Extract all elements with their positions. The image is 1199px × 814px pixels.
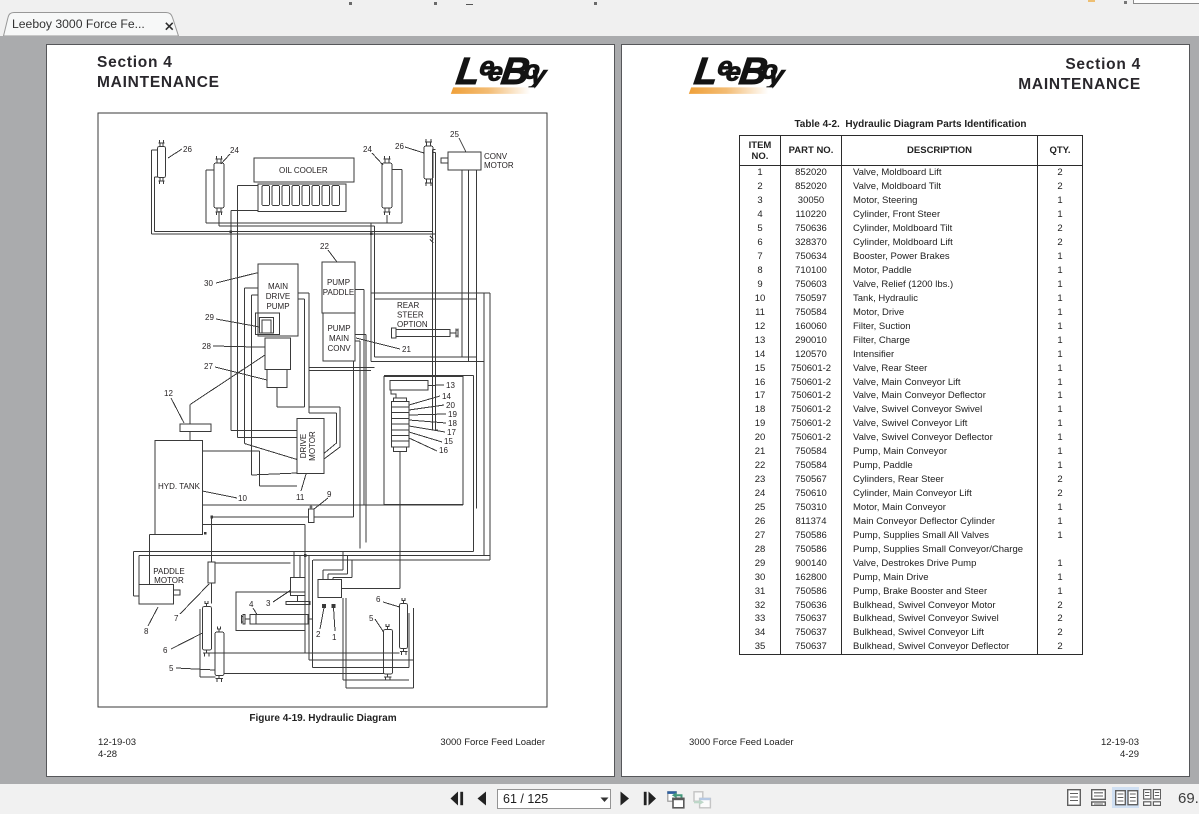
- svg-text:30: 30: [204, 279, 213, 288]
- svg-text:PADDLE: PADDLE: [323, 288, 354, 297]
- svg-text:STEER: STEER: [397, 311, 424, 320]
- svg-text:MOTOR: MOTOR: [308, 431, 317, 461]
- svg-text:MAIN: MAIN: [268, 282, 288, 291]
- svg-text:27: 27: [204, 362, 213, 371]
- svg-text:11: 11: [296, 493, 305, 502]
- svg-text:MOTOR: MOTOR: [154, 576, 184, 585]
- svg-text:20: 20: [446, 401, 455, 410]
- svg-text:1: 1: [332, 633, 337, 642]
- svg-text:MAIN: MAIN: [329, 334, 349, 343]
- svg-text:4: 4: [249, 600, 254, 609]
- svg-text:18: 18: [448, 419, 457, 428]
- svg-text:10: 10: [238, 494, 247, 503]
- svg-text:12: 12: [164, 389, 173, 398]
- svg-text:24: 24: [230, 146, 239, 155]
- svg-text:15: 15: [444, 437, 453, 446]
- svg-text:OIL COOLER: OIL COOLER: [279, 166, 328, 175]
- svg-text:PUMP: PUMP: [327, 278, 350, 287]
- svg-text:6: 6: [376, 595, 381, 604]
- svg-text:17: 17: [447, 428, 456, 437]
- svg-text:19: 19: [448, 410, 457, 419]
- svg-text:8: 8: [144, 627, 149, 636]
- svg-text:13: 13: [446, 381, 455, 390]
- svg-text:26: 26: [183, 145, 192, 154]
- svg-text:22: 22: [320, 242, 329, 251]
- svg-text:DRIVE: DRIVE: [299, 434, 308, 458]
- svg-text:REAR: REAR: [397, 301, 419, 310]
- svg-text:16: 16: [439, 446, 448, 455]
- svg-text:PUMP: PUMP: [327, 324, 350, 333]
- svg-text:3: 3: [266, 599, 271, 608]
- svg-text:CONV: CONV: [327, 344, 351, 353]
- svg-text:PUMP: PUMP: [266, 302, 289, 311]
- svg-text:DRIVE: DRIVE: [266, 292, 290, 301]
- svg-text:21: 21: [402, 345, 411, 354]
- svg-text:OPTION: OPTION: [397, 320, 428, 329]
- svg-text:24: 24: [363, 145, 372, 154]
- svg-text:29: 29: [205, 313, 214, 322]
- svg-text:HYD. TANK: HYD. TANK: [158, 482, 201, 491]
- svg-text:7: 7: [174, 614, 179, 623]
- svg-text:5: 5: [369, 614, 374, 623]
- svg-text:2: 2: [316, 630, 321, 639]
- svg-text:PADDLE: PADDLE: [153, 567, 184, 576]
- svg-text:5: 5: [169, 664, 174, 673]
- svg-text:28: 28: [202, 342, 211, 351]
- svg-text:6: 6: [163, 646, 168, 655]
- svg-text:14: 14: [442, 392, 451, 401]
- svg-text:9: 9: [327, 490, 332, 499]
- svg-text:CONV: CONV: [484, 152, 508, 161]
- svg-text:26: 26: [395, 142, 404, 151]
- svg-text:25: 25: [450, 130, 459, 139]
- svg-text:MOTOR: MOTOR: [484, 161, 514, 170]
